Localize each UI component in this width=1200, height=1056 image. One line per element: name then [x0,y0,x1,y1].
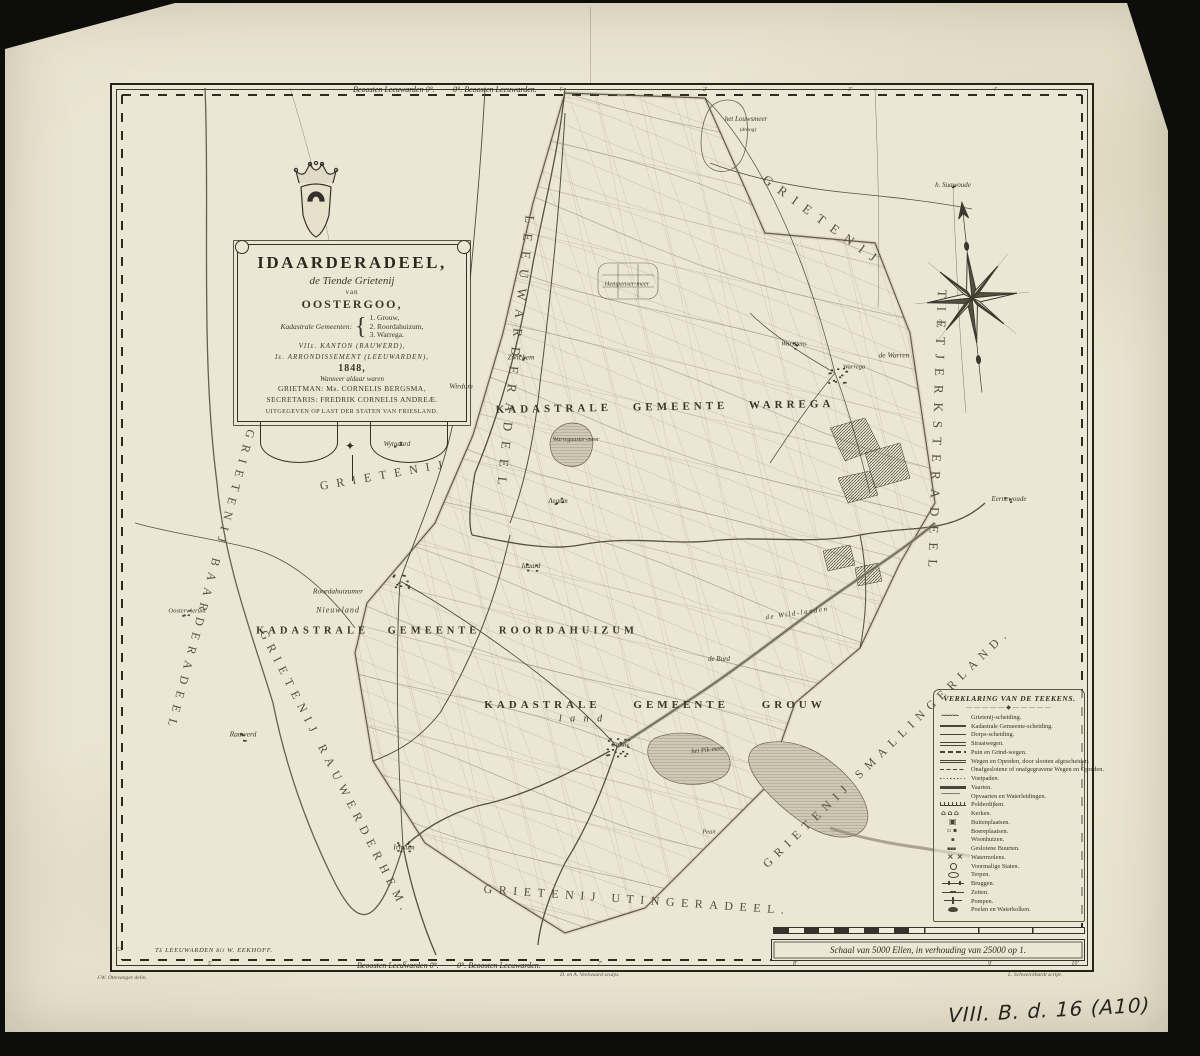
oval-icon [940,871,966,879]
waterway-grou-ne-line [617,523,935,747]
place-label: (droog) [740,127,757,133]
letter-engraver-credit: L. Schweickhardt script. [1008,972,1062,978]
north-needle [957,202,969,219]
map-subtitle-van: van [238,288,466,296]
legend-row: Pompen. [940,897,1079,906]
tick-label: 1' [559,87,563,93]
legend-row: Poelen en Waterkolken. [940,906,1079,915]
thin-line-icon [940,731,966,739]
small-wave-icon [940,792,966,800]
district-name: OOSTERGOO, [238,297,466,312]
tick-label: 3' [848,87,852,93]
brace-glyph: { [355,316,367,338]
legend-label: Puin en Grind-wegen. [971,749,1026,756]
uitgegeven-line: UITGEGEVEN OP LAST DER STATEN VAN FRIESL… [238,408,466,415]
place-label: Eernewoude [992,495,1027,503]
place-label: Wirdum [449,382,472,391]
arrondissement-line: Ie. ARRONDISSEMENT (LEEUWARDEN), [238,353,466,361]
legend-title: VERKLARING VAN DE TEEKENS. [940,694,1079,703]
cartouche-volute-right [457,240,471,254]
pump-icon [940,897,966,905]
pencil-mark: 2 [938,318,942,327]
scale-bar [773,927,1085,934]
legend-label: Watermolens. [971,854,1006,861]
tick-label: 8' [793,961,797,967]
bridge-icon [940,880,966,888]
legend-label: Zetten. [971,889,989,896]
place-label: l a n d [559,714,605,725]
legend-row: Terpen. [940,871,1079,880]
double-thin-icon [940,757,966,765]
gemeente-label: KADASTRALE GEMEENTE ROORDAHUIZUM [256,626,638,637]
cartouche-volute-left [235,240,249,254]
place-label: de Burd [708,655,730,663]
windmill-icon [940,853,966,861]
gemeente-entry: 3. Warrega. [370,331,424,340]
place-label: Hempenser-meer [605,281,650,288]
dashed-line-icon [940,766,966,774]
border-label-top-left: Beoosten Leeuwarden 0°. [353,85,435,94]
map-subtitle: de Tiende Grietenij [238,275,466,287]
publisher-imprint: Te LEEUWARDEN bij W. EEKHOFF. [155,947,273,954]
thick-line-icon [940,722,966,730]
tick-label: 9' [988,961,992,967]
place-label: Idaard [522,562,541,570]
legend-row: Wegen en Opreden, door slooten afgeschei… [940,757,1079,766]
year: 1848, [238,363,466,374]
tick-label: 2' [703,87,707,93]
place-label: Irnsum [393,843,414,852]
wavy-line-icon [940,713,966,721]
dotted-line-icon [940,775,966,783]
legend-label: Kerken. [971,810,991,817]
place-label: h. Suawoude [935,181,971,189]
legend-label: Polderdijken. [971,801,1005,808]
legend-label: Buitenplaatsen. [971,819,1010,826]
place-label: Pean [702,829,715,836]
tick-label: 6' [403,961,407,967]
gemeente-label: KADASTRALE GEMEENTE GROUW [484,699,825,711]
secretaris-line: SECRETARIS: FREDRIK CORNELIS ANDREÆ. [238,395,466,404]
circle-icon [940,862,966,870]
place-label: Nieuwland [316,606,360,615]
place-label: Rauwerd [230,730,257,739]
estate-icon [940,818,966,826]
legend-label: Voormalige Staten. [971,863,1019,870]
kadastrale-gemeenten: Kadastrale Gemeenten: { 1. Grouw,2. Roor… [238,314,466,340]
pool-icon [940,906,966,914]
engraver-credit: D. en A. Veelwaard sculps. [560,972,620,978]
legend-label: Onafgeslotene of onafgegravene Wegen en … [971,766,1104,773]
place-label: Oosterwierum [168,608,205,615]
legend-row: Vaarten. [940,783,1079,792]
paper-sheet: Beoosten Leeuwarden 0°. 0°. Beoosten Lee… [5,3,1168,1032]
legend-label: Voetpaden. [971,775,999,782]
legend-label: Boereplaatsen. [971,828,1008,835]
tick-label: 4' [993,87,997,93]
bar-icon [940,888,966,896]
legend-row: Polderdijken. [940,801,1079,810]
place-label: Grouw [611,742,629,749]
lake-pikmeer [648,733,730,784]
delineator-credit: J.W. Ottevanger delin. [97,975,147,981]
place-label: Warstiens [781,341,806,348]
legend-row: Onafgeslotene of onafgegravene Wegen en … [940,766,1079,775]
legend-label: Bruggen. [971,880,994,887]
legend-row: Woonhuizen. [940,836,1079,845]
legend-label: Opvaarten en Waterleidingen. [971,793,1046,800]
legend-row: Dorps-scheiding. [940,731,1079,740]
legend-row: Boereplaatsen. [940,827,1079,836]
legend-label: Kadastrale Gemeente-scheiding. [971,723,1053,730]
title-cartouche: IDAARDERADEEL, de Tiende Grietenij van O… [237,244,467,422]
lake-louwsmeer [701,100,747,172]
legend-row: Voetpaden. [940,774,1079,783]
legend-row: Bruggen. [940,879,1079,888]
legend-row: Watermolens. [940,853,1079,862]
legend-label: Woonhuizen. [971,836,1004,843]
tick-label: 7' [598,961,602,967]
place-label: Warregaaster-meer [553,437,599,443]
legend-panel: VERKLARING VAN DE TEEKENS. —————◆————— G… [933,689,1085,922]
legend-row: Puin en Grind-wegen. [940,748,1079,757]
map-sheet-scan: Beoosten Leeuwarden 0°. 0°. Beoosten Lee… [0,0,1200,1056]
map-title: IDAARDERADEEL, [238,253,466,273]
place-label: het Louwsmeer [725,115,768,123]
place-label: Aegum [548,497,567,505]
legend-row: Buitenplaatsen. [940,818,1079,827]
legend-label: Vaarten. [971,784,992,791]
gemeenten-label: Kadastrale Gemeenten: [281,322,352,331]
legend-label: Terpen. [971,871,990,878]
waterway-grou-ne [617,523,935,747]
lake-warregaaster-meer [550,423,593,466]
legend-label: Pompen. [971,898,993,905]
legend-row: Kadastrale Gemeente-scheiding. [940,722,1079,731]
legend-label: Geslotene Buurten. [971,845,1020,852]
place-label: Roordahuizumer [313,587,363,596]
double-line-icon [940,740,966,748]
gemeenten-list: 1. Grouw,2. Roordahuizum,3. Warrega. [370,314,424,340]
grietman-line: GRIETMAN: Mr. CORNELIS BERGSMA, [238,384,466,393]
place-label: de Warren [879,351,910,360]
legend-label: Dorps-scheiding. [971,731,1014,738]
cartouche-scallop-left [260,422,338,463]
place-label: Zwichem [507,353,534,362]
border-label-bottom-left: Beoosten Leeuwarden 0°. [357,961,439,970]
scale-caption: Schaal van 5000 Ellen, in verhouding van… [771,939,1085,961]
farm-icon [940,827,966,835]
tick-label: 53 [116,947,122,953]
heraldic-crest [277,161,355,249]
legend-row: Opvaarten en Waterleidingen. [940,792,1079,801]
legend-label: Poelen en Waterkolken. [971,906,1031,913]
scale-bar-marks [924,928,1084,933]
border-label-top-right: 0°. Beoosten Leeuwarden. [453,85,537,94]
legend-row: Voormalige Staten. [940,862,1079,871]
legend-row: Straatwegen. [940,739,1079,748]
legend-row: Kerken. [940,809,1079,818]
cartouche-finial: ✦ [345,439,355,454]
legend-label: Grietenij-scheiding. [971,714,1021,721]
house-icon [940,836,966,844]
legend-ornament: —————◆————— [940,704,1079,711]
tick-label: 5' [208,961,212,967]
legend-row: Grietenij-scheiding. [940,713,1079,722]
legend-label: Straatwegen. [971,740,1004,747]
place-label: Warrega [843,364,865,371]
border-label-bottom-right: 0°. Beoosten Leeuwarden. [457,961,541,970]
legend-row: Zetten. [940,888,1079,897]
legend-rows: Grietenij-scheiding.Kadastrale Gemeente-… [940,713,1079,914]
kanton-line: VIIe. KANTON (RAUWERD), [238,342,466,350]
paper-crease [590,7,591,85]
legend-label: Wegen en Opreden, door slooten afgeschei… [971,758,1090,765]
dashed-thick-icon [940,748,966,756]
scale-bar-subdivisions [774,928,924,933]
place-label: Wytgaard [384,440,411,448]
tick-label: 10' [1071,961,1078,967]
wanneer-line: Wanneer aldaar waren [238,375,466,383]
